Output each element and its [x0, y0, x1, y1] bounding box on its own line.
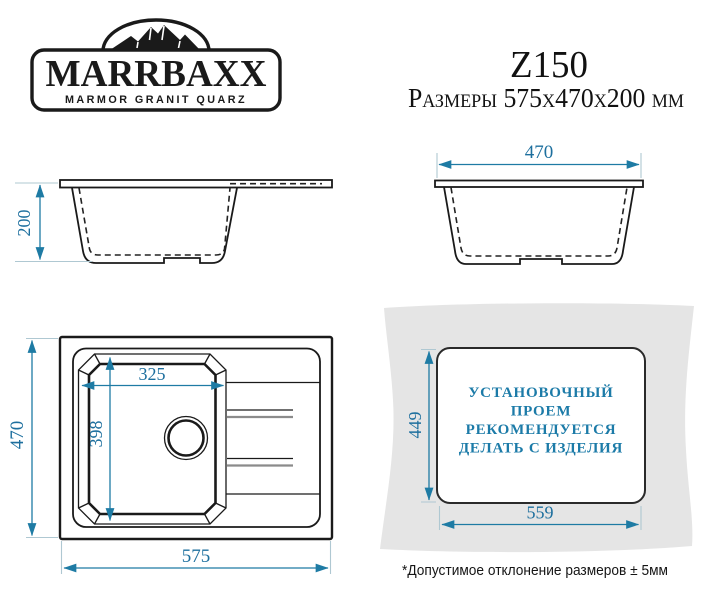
rim-profile	[435, 181, 643, 188]
bowl-inner-hidden	[79, 188, 230, 255]
bowl-inner-hidden	[451, 188, 627, 257]
cutout-view: УСТАНОВОЧНЫЙ ПРОЕМ РЕКОМЕНДУЕТСЯ ДЕЛАТЬ …	[380, 303, 694, 552]
cutout-note-line-4: ДЕЛАТЬ С ИЗДЕЛИЯ	[459, 441, 623, 457]
dim-398-label: 398	[86, 421, 106, 448]
top-view: 325 398 470 575	[7, 337, 332, 574]
sink-technical-drawing: MARRBAXX MARMOR GRANIT QUARZ Z150 Размер…	[0, 0, 720, 600]
side-view-length: 200	[14, 180, 332, 263]
page: MARRBAXX MARMOR GRANIT QUARZ Z150 Размер…	[0, 0, 720, 600]
drainboard-edges	[227, 383, 321, 495]
bowl-rim-inner	[89, 364, 216, 514]
drain-hole	[169, 421, 204, 456]
bowl-outline	[72, 188, 237, 263]
dim-559-label: 559	[527, 503, 554, 523]
dim-325-label: 325	[139, 364, 166, 384]
dim-470-top-label: 470	[7, 421, 28, 450]
cutout-note-line-3: РЕКОМЕНДУЕТСЯ	[466, 422, 617, 438]
dim-449-label: 449	[405, 412, 425, 439]
overall-sizes: Размеры 575x470x200 мм	[408, 83, 684, 113]
drain-outer-ring	[165, 417, 208, 460]
brand-name: MARRBAXX	[46, 53, 267, 95]
extension-lines	[26, 339, 58, 538]
brand-tagline: MARMOR GRANIT QUARZ	[65, 94, 247, 106]
cutout-note-line-1: УСТАНОВОЧНЫЙ	[468, 384, 613, 401]
title-block: Z150 Размеры 575x470x200 мм	[408, 44, 684, 113]
tolerance-footnote: *Допустимое отклонение размеров ± 5мм	[402, 562, 668, 579]
mountain-icon	[110, 25, 200, 50]
cutout-note-line-2: ПРОЕМ	[511, 404, 572, 420]
bowl-outline	[444, 187, 634, 264]
dim-575-label: 575	[182, 546, 211, 567]
side-view-width: 470	[435, 142, 643, 264]
dim-200-label: 200	[14, 210, 34, 237]
dim-470-label: 470	[525, 142, 554, 163]
brand-logo: MARRBAXX MARMOR GRANIT QUARZ	[32, 20, 280, 110]
model-number: Z150	[510, 44, 588, 86]
